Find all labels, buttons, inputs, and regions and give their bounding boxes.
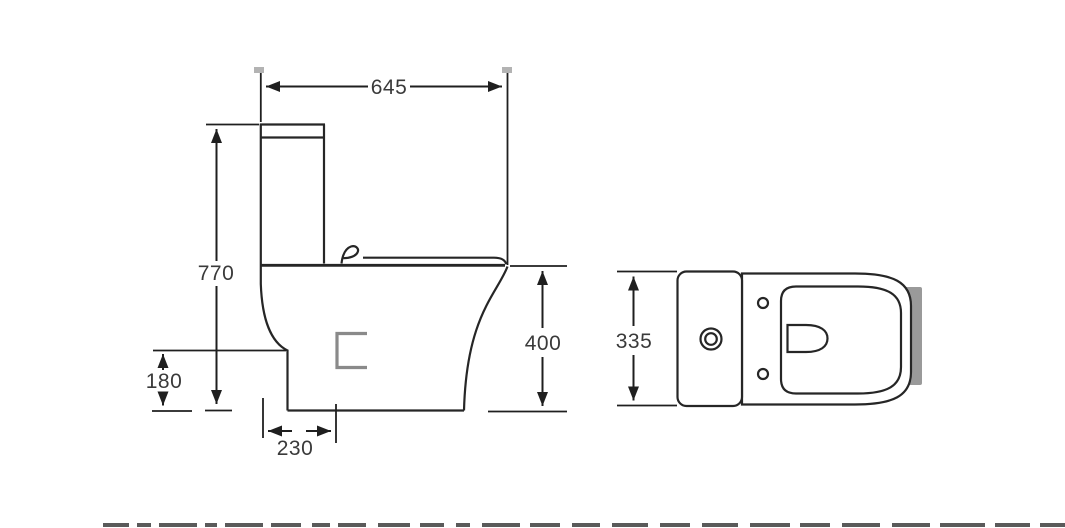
- seat-profile: [363, 258, 506, 265]
- dim-label-770: 770: [198, 262, 235, 285]
- dim-overall-width: 335: [616, 272, 677, 406]
- dim-label-645: 645: [371, 76, 408, 99]
- bowl-right-curve: [464, 267, 508, 411]
- cut-off-text-row: [103, 523, 1065, 527]
- seat-hinge-bumper: [342, 246, 359, 263]
- extension-tick-left: [254, 67, 264, 73]
- dim-bowl-height: 400: [488, 266, 567, 412]
- dim-overall-depth: 645: [254, 67, 512, 265]
- dim-label-400: 400: [525, 332, 562, 355]
- tank-outline: [678, 272, 743, 407]
- bowl-left-curve: [261, 266, 288, 411]
- dim-outlet-offset: 230: [263, 398, 336, 460]
- side-view: [260, 124, 508, 411]
- dim-overall-height: 770: [198, 125, 259, 411]
- toilet-dimension-drawing: 645 770 180 230 400: [0, 0, 1065, 528]
- extension-tick-right: [502, 67, 512, 73]
- top-view: [678, 272, 923, 407]
- trap-symbol: [337, 334, 367, 368]
- dim-label-180: 180: [146, 370, 183, 393]
- dim-label-230: 230: [277, 437, 314, 460]
- technical-drawing-page: 645 770 180 230 400: [0, 0, 1065, 528]
- dim-label-335: 335: [616, 330, 653, 353]
